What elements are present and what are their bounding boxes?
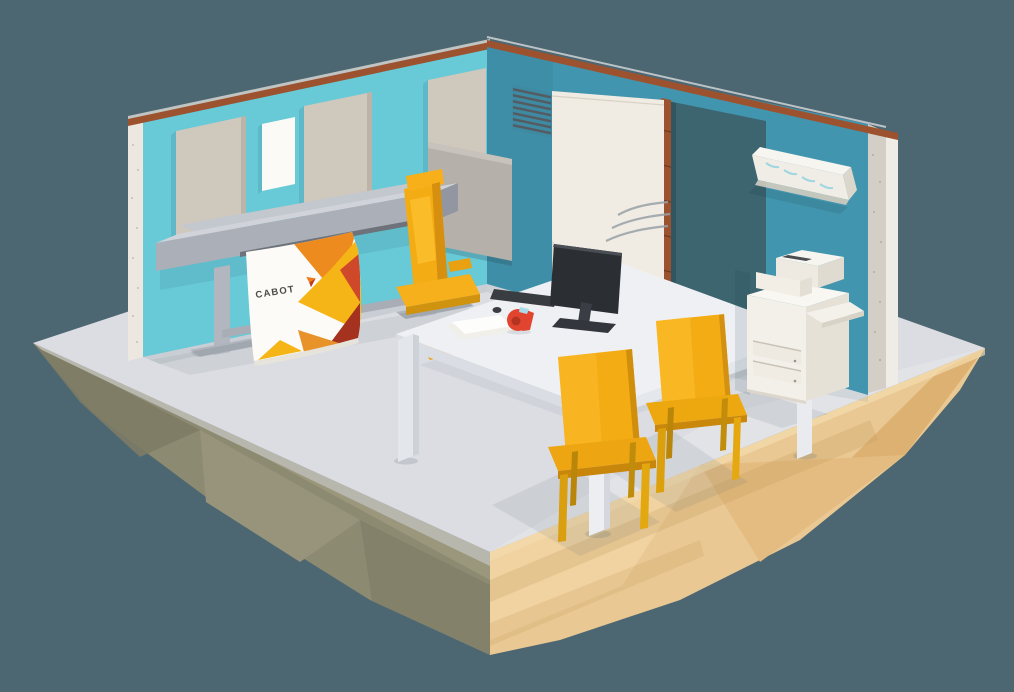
mouse — [493, 307, 502, 313]
cabot-poster: CABOT — [246, 231, 362, 366]
wall-poster-sheet — [262, 117, 295, 191]
right-wall-exterior-edge — [868, 124, 886, 393]
left-wall-exterior-edge — [128, 117, 143, 361]
office-room-illustration: CABOT — [0, 0, 1014, 692]
air-vent — [512, 85, 552, 138]
